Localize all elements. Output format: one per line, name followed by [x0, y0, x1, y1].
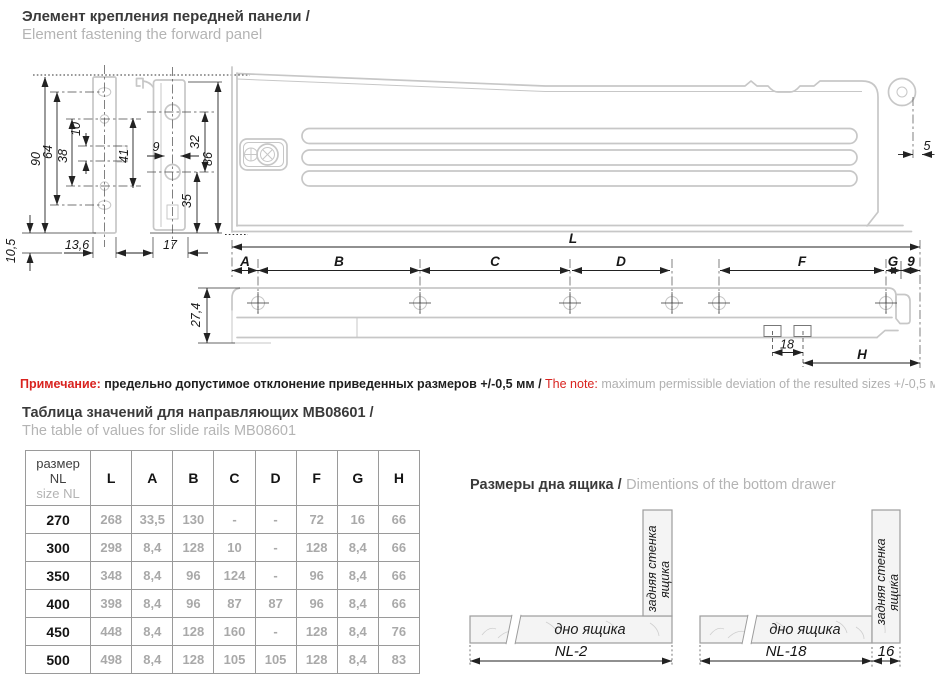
cell: 8,4	[132, 534, 173, 562]
column-header: G	[337, 451, 378, 506]
drawer-bottom-label: дно ящика	[554, 622, 625, 638]
drawer-title-ru: Размеры дна ящика /	[470, 477, 622, 493]
cell: 83	[378, 646, 419, 674]
cell: 8,4	[337, 562, 378, 590]
dim-C: C	[490, 254, 500, 269]
column-header: L	[91, 451, 132, 506]
dim-A: A	[239, 254, 250, 269]
note-label-en: The note:	[545, 377, 601, 391]
column-header: H	[378, 451, 419, 506]
cell: 128	[296, 646, 337, 674]
cell: 66	[378, 562, 419, 590]
cell: 8,4	[132, 618, 173, 646]
cell: 498	[91, 646, 132, 674]
drawer-bottom-diagrams: дно ящика задняя стенка ящика NL-2 дно я…	[460, 495, 935, 690]
table-header-row: размер NL size NL L A B C D F G H	[26, 451, 420, 506]
dim-17: 17	[163, 238, 178, 252]
column-header: F	[296, 451, 337, 506]
cell: 130	[173, 506, 214, 534]
cell: -	[214, 506, 255, 534]
dim-9-front: 9	[153, 140, 160, 154]
cell: 66	[378, 590, 419, 618]
table-row: 350 348 8,4 96 124 - 96 8,4 66	[26, 562, 420, 590]
dim-L: L	[569, 231, 577, 246]
cell: 16	[337, 506, 378, 534]
dim-F: F	[798, 254, 807, 269]
cell: 8,4	[337, 646, 378, 674]
table-title: Таблица значений для направляющих MB0860…	[22, 404, 374, 440]
cell: 8,4	[132, 646, 173, 674]
column-header: C	[214, 451, 255, 506]
table-row: 500 498 8,4 128 105 105 128 8,4 83	[26, 646, 420, 674]
size-column-header: размер NL size NL	[26, 451, 91, 506]
dim-9-rail: 9	[907, 254, 915, 269]
cell: 124	[214, 562, 255, 590]
dim-B: B	[334, 254, 344, 269]
dim-nl-2: NL-2	[555, 643, 588, 660]
cell: 66	[378, 534, 419, 562]
cell: 96	[173, 590, 214, 618]
cell: -	[255, 534, 296, 562]
cell: 128	[296, 534, 337, 562]
cell: 128	[173, 618, 214, 646]
note-label-ru: Примечание:	[20, 377, 104, 391]
cell: 8,4	[132, 562, 173, 590]
table-row: 400 398 8,4 96 87 87 96 8,4 66	[26, 590, 420, 618]
dim-18: 18	[780, 338, 794, 352]
values-table: размер NL size NL L A B C D F G H 270 26…	[25, 450, 420, 674]
dim-H: H	[857, 347, 867, 362]
dim-13-6: 13,6	[65, 238, 89, 252]
drawer-bottom-label: дно ящика	[769, 622, 840, 638]
table-row: 270 268 33,5 130 - - 72 16 66	[26, 506, 420, 534]
cell: 66	[378, 506, 419, 534]
dim-16: 16	[878, 643, 895, 660]
drawer-diagram-nl18: дно ящика задняя стенка ящика NL-18 16	[700, 510, 901, 667]
cell: 105	[255, 646, 296, 674]
front-view-drawing: 90 64 38 10 41 10,5 13,6 9	[4, 65, 250, 271]
cell: 8,4	[132, 590, 173, 618]
cell: 448	[91, 618, 132, 646]
dim-64: 64	[41, 145, 55, 159]
table-title-ru: Таблица значений для направляющих MB0860…	[22, 404, 374, 422]
cell: 87	[255, 590, 296, 618]
cell: 72	[296, 506, 337, 534]
cell: 87	[214, 590, 255, 618]
cell: 96	[173, 562, 214, 590]
page-title-en: Element fastening the forward panel	[22, 26, 310, 44]
cell: 96	[296, 562, 337, 590]
cell: 128	[296, 618, 337, 646]
rail-holes	[247, 292, 897, 314]
column-header: A	[132, 451, 173, 506]
cell: 398	[91, 590, 132, 618]
table-title-en: The table of values for slide rails MB08…	[22, 422, 374, 440]
table-row: 450 448 8,4 128 160 - 128 8,4 76	[26, 618, 420, 646]
dim-35: 35	[180, 194, 194, 208]
cell: 10	[214, 534, 255, 562]
cell: 160	[214, 618, 255, 646]
row-size: 350	[26, 562, 91, 590]
cell: -	[255, 618, 296, 646]
dim-10-5: 10,5	[4, 239, 18, 263]
dim-32: 32	[188, 135, 202, 149]
note-text-ru: предельно допустимое отклонение приведен…	[104, 377, 545, 391]
row-size: 300	[26, 534, 91, 562]
dim-86: 86	[201, 152, 215, 166]
cell: 33,5	[132, 506, 173, 534]
row-size: 270	[26, 506, 91, 534]
cell: -	[255, 506, 296, 534]
cell: 128	[173, 646, 214, 674]
note-text-en: maximum permissible deviation of the res…	[601, 377, 935, 391]
drawer-diagram-nl2: дно ящика задняя стенка ящика NL-2	[470, 510, 672, 667]
technical-drawing: 90 64 38 10 41 10,5 13,6 9	[0, 55, 935, 370]
dim-27-4: 27,4	[189, 303, 203, 328]
row-size: 400	[26, 590, 91, 618]
dim-38: 38	[56, 149, 70, 163]
column-header: B	[173, 451, 214, 506]
drawer-title: Размеры дна ящика / Dimentions of the bo…	[470, 476, 836, 494]
dim-5: 5	[924, 139, 931, 153]
page-title-ru: Элемент крепления передней панели /	[22, 8, 310, 26]
cell: 8,4	[337, 534, 378, 562]
row-size: 500	[26, 646, 91, 674]
side-panel-drawing: 5	[232, 67, 935, 232]
drawer-title-en: Dimentions of the bottom drawer	[626, 477, 836, 493]
cell: 8,4	[337, 590, 378, 618]
dim-G: G	[888, 254, 899, 269]
dim-D: D	[616, 254, 626, 269]
row-size: 450	[26, 618, 91, 646]
cell: -	[255, 562, 296, 590]
rail-dimension-view: L A B C D F G 9	[189, 231, 920, 368]
note: Примечание: предельно допустимое отклоне…	[20, 377, 935, 392]
dim-nl-18: NL-18	[766, 643, 808, 660]
cell: 105	[214, 646, 255, 674]
cell: 76	[378, 618, 419, 646]
cell: 8,4	[337, 618, 378, 646]
cell: 268	[91, 506, 132, 534]
cell: 298	[91, 534, 132, 562]
dim-10: 10	[69, 122, 83, 136]
cell: 96	[296, 590, 337, 618]
page-title: Элемент крепления передней панели / Elem…	[22, 8, 310, 44]
cell: 128	[173, 534, 214, 562]
catalog-page: Элемент крепления передней панели / Elem…	[0, 0, 935, 700]
cell: 348	[91, 562, 132, 590]
column-header: D	[255, 451, 296, 506]
table-row: 300 298 8,4 128 10 - 128 8,4 66	[26, 534, 420, 562]
dim-41: 41	[117, 149, 131, 163]
